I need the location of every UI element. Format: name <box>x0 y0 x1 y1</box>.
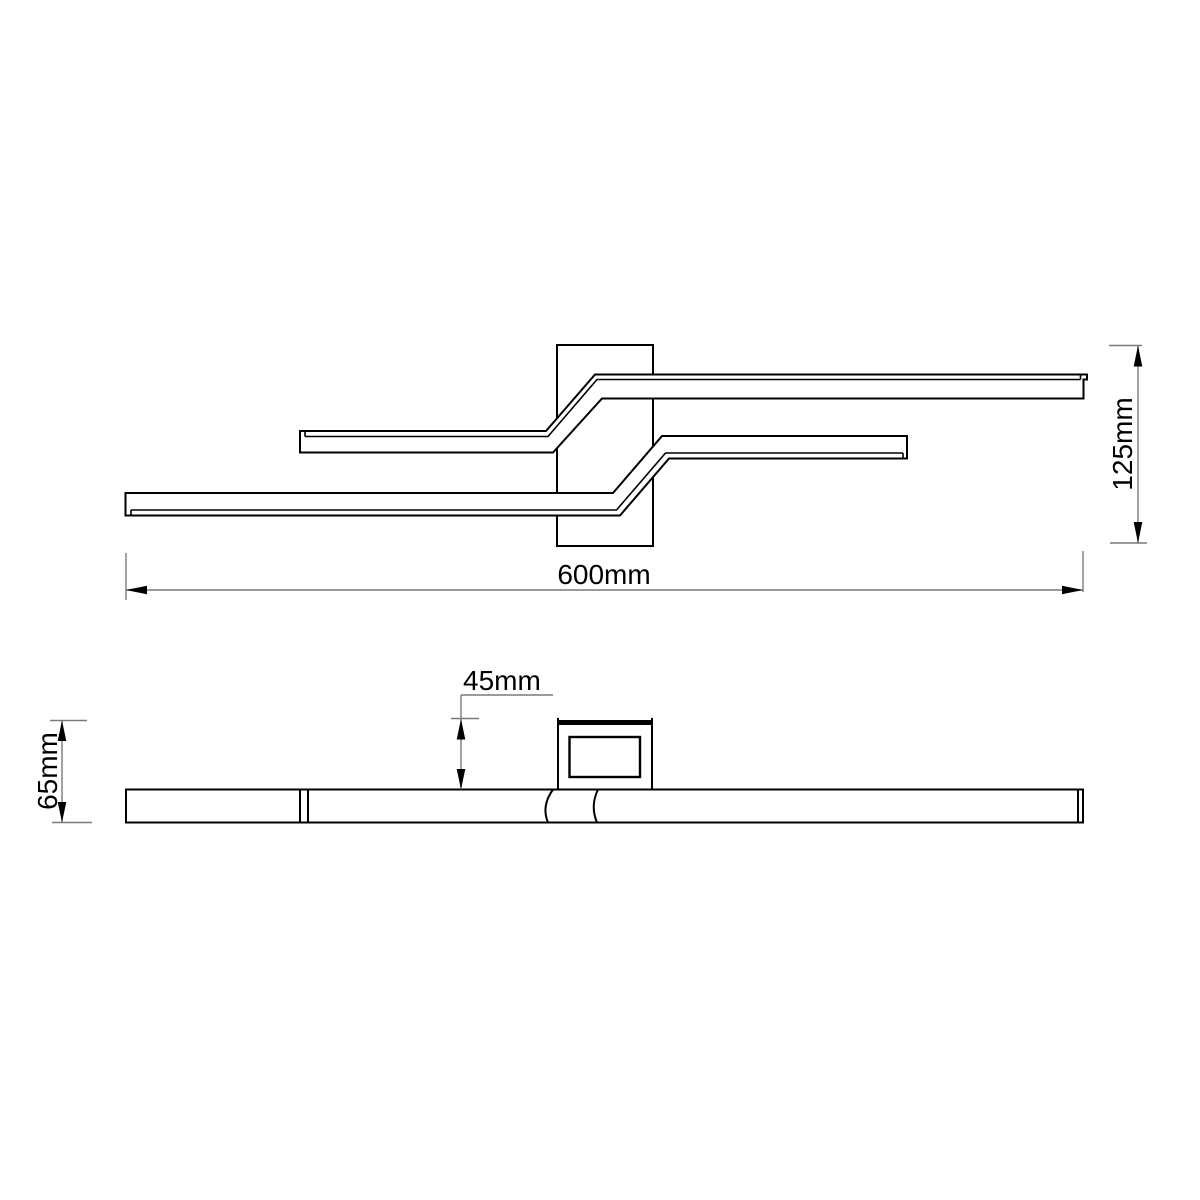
arrowhead-down-icon <box>1134 522 1143 543</box>
bar-profile <box>126 790 1083 823</box>
dimension-canopy-height: 45mm <box>451 665 553 790</box>
side-view: 45mm 65mm <box>32 665 1083 823</box>
dimension-overall-height: 65mm <box>32 721 92 823</box>
dimension-depth-label: 125mm <box>1107 397 1138 490</box>
dimension-width: 600mm <box>126 551 1083 600</box>
dimension-depth: 125mm <box>1107 346 1147 544</box>
top-view-geometry <box>126 345 1088 546</box>
dimension-canopy-label: 45mm <box>463 665 541 696</box>
canopy-driver-box <box>570 737 641 777</box>
arrowhead-left-icon <box>126 586 147 595</box>
drawing-canvas: 600mm 125mm <box>0 0 1200 1200</box>
side-view-geometry <box>126 718 1083 823</box>
arrowhead-up-icon <box>457 719 466 740</box>
arrowhead-down-icon <box>457 769 466 790</box>
dimension-width-label: 600mm <box>557 559 650 590</box>
arrowhead-right-icon <box>1062 586 1083 595</box>
top-view: 600mm 125mm <box>126 345 1148 600</box>
dimension-height-label: 65mm <box>32 732 63 810</box>
technical-drawing: 600mm 125mm <box>0 0 1200 1200</box>
arrowhead-up-icon <box>1134 346 1143 367</box>
